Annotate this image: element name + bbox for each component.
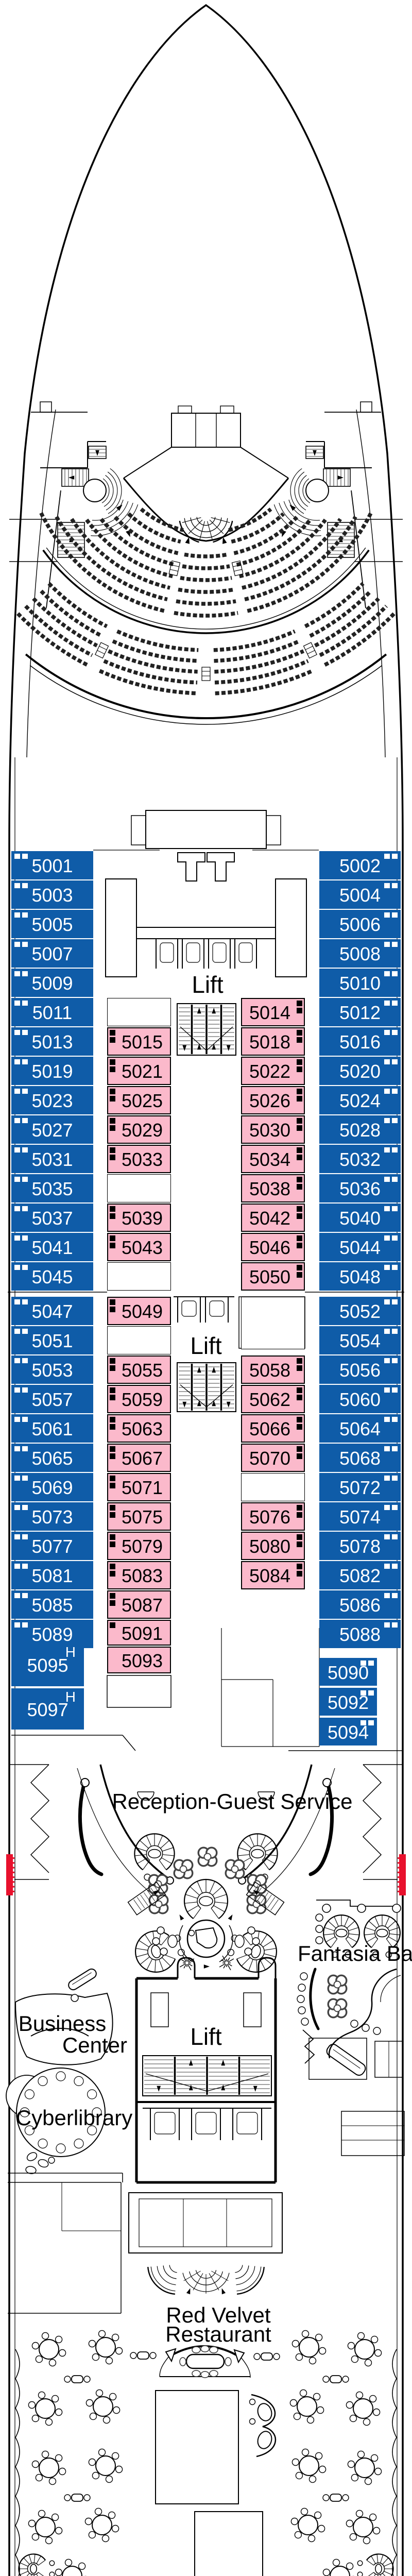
berth-square-icon (392, 1265, 398, 1270)
cabin-5088: 5088 (319, 1620, 401, 1648)
cabin-number: 5054 (339, 1330, 381, 1350)
galley (129, 2193, 282, 2253)
cabin-5032: 5032 (319, 1145, 401, 1173)
berth-square-icon (392, 1147, 398, 1153)
berth-square-icon (14, 1265, 20, 1270)
berth-square-icon (384, 1505, 390, 1510)
cabin-5087: 5087 (107, 1590, 171, 1619)
cabin-number: 5023 (31, 1090, 73, 1110)
cabin-5037: 5037 (11, 1204, 93, 1232)
berth-square-icon (384, 1299, 390, 1304)
berth-square-icon (297, 1213, 302, 1219)
berth-square-icon (14, 1505, 20, 1510)
cabin-number: 5067 (115, 1448, 163, 1468)
berth-square-icon (14, 1387, 20, 1393)
berth-square-icon (22, 1476, 28, 1481)
cabin-5050: 5050 (241, 1262, 305, 1291)
berth-square-icon (392, 1030, 398, 1035)
cabin-5006: 5006 (319, 910, 401, 938)
cabin-5093: 5093 (107, 1647, 171, 1673)
berth-square-icon (297, 1089, 302, 1094)
cabin-number: 5066 (249, 1418, 297, 1438)
cabin-number: 5030 (249, 1120, 297, 1140)
berth-square-icon (392, 1564, 398, 1569)
cabin-5086: 5086 (319, 1590, 401, 1619)
berth-square-icon (110, 1512, 115, 1518)
berth-square-icon (110, 1395, 115, 1400)
berth-square-icon (110, 1059, 115, 1065)
cabin-5063: 5063 (107, 1414, 171, 1443)
cabin-number: 5016 (339, 1031, 381, 1052)
cabin-number: 5056 (339, 1360, 381, 1380)
berth-square-icon (297, 1571, 302, 1577)
cabin-number: 5072 (339, 1477, 381, 1497)
cabin-number: 5021 (115, 1061, 163, 1081)
berth-square-icon (110, 1307, 115, 1312)
berth-square-icon (22, 1534, 28, 1539)
berth-square-icon (110, 1365, 115, 1371)
cabin-number: 5062 (249, 1389, 297, 1409)
label-business-center-1: Business (19, 2011, 106, 2036)
cabin-5065: 5065 (11, 1444, 93, 1472)
berth-square-icon (392, 1358, 398, 1363)
berth-square-icon (14, 1059, 20, 1064)
berth-square-icon (384, 1001, 390, 1006)
berth-square-icon (22, 1059, 28, 1064)
cabin-number: 5009 (31, 973, 73, 993)
cabin-number: 5086 (339, 1595, 381, 1615)
room-blank (107, 1174, 171, 1202)
berth-square-icon (22, 1564, 28, 1569)
berth-square-icon (110, 1593, 115, 1599)
berth-square-icon (14, 1118, 20, 1123)
berth-square-icon (22, 1299, 28, 1304)
cabin-5039: 5039 (107, 1204, 171, 1232)
cabin-5031: 5031 (11, 1145, 93, 1173)
room-blank (107, 1326, 171, 1354)
cabin-number: 5003 (31, 885, 73, 905)
berth-square-icon (297, 1096, 302, 1101)
berth-square-icon (297, 1206, 302, 1212)
berth-square-icon (110, 1564, 115, 1569)
cabin-5022: 5022 (241, 1057, 305, 1085)
berth-square-icon (110, 1089, 115, 1094)
berth-square-icon (384, 1417, 390, 1422)
cabin-number: 5045 (31, 1266, 73, 1286)
berth-square-icon (297, 1155, 302, 1160)
berth-square-icon (392, 1446, 398, 1451)
label-cyberlibrary: Cyberlibrary (16, 2106, 132, 2130)
berth-square-icon (392, 1476, 398, 1481)
berth-square-icon (110, 1118, 115, 1124)
cabin-number: 5033 (115, 1149, 163, 1169)
cabin-5067: 5067 (107, 1444, 171, 1472)
berth-square-icon (297, 1059, 302, 1065)
cabin-number: 5049 (115, 1301, 163, 1321)
cabin-number: 5051 (31, 1330, 73, 1350)
stage-block (131, 810, 281, 881)
berth-square-icon (14, 1206, 20, 1211)
cabin-5095: 5095H (11, 1643, 84, 1686)
cabin-5097: 5097H (11, 1688, 84, 1730)
berth-square-icon (392, 1387, 398, 1393)
berth-square-icon (384, 1387, 390, 1393)
cabin-5018: 5018 (241, 1027, 305, 1056)
cabin-5007: 5007 (11, 939, 93, 968)
cabin-number: 5079 (115, 1536, 163, 1556)
room-blank (107, 1262, 171, 1291)
cabin-number: 5020 (339, 1061, 381, 1081)
berth-square-icon (14, 1358, 20, 1363)
cabin-number: 5027 (31, 1120, 73, 1140)
berth-square-icon (14, 1030, 20, 1035)
berth-square-icon (392, 1417, 398, 1422)
cabin-number: 5075 (115, 1506, 163, 1527)
label-lift-atrium: Lift (190, 2023, 221, 2050)
cabin-5046: 5046 (241, 1233, 305, 1261)
room-blank (241, 1297, 305, 1349)
cabin-number: 5095 (27, 1655, 68, 1675)
cabin-number: 5061 (31, 1418, 73, 1438)
cabin-5025: 5025 (107, 1086, 171, 1114)
cabin-number: 5022 (249, 1061, 297, 1081)
berth-square-icon (297, 1358, 302, 1364)
berth-square-icon (110, 1096, 115, 1101)
berth-square-icon (392, 1534, 398, 1539)
cabin-5080: 5080 (241, 1532, 305, 1560)
berth-square-icon (22, 912, 28, 918)
berth-square-icon (297, 1387, 302, 1393)
cabin-number: 5001 (31, 855, 73, 875)
cabin-number: 5040 (339, 1208, 381, 1228)
cabin-5024: 5024 (319, 1086, 401, 1114)
berth-square-icon (14, 971, 20, 976)
berth-square-icon (392, 854, 398, 859)
cabin-number: 5002 (339, 855, 381, 875)
berth-square-icon (392, 1299, 398, 1304)
berth-square-icon (22, 1505, 28, 1510)
berth-square-icon (384, 1235, 390, 1241)
berth-square-icon (297, 1030, 302, 1036)
berth-square-icon (22, 1358, 28, 1363)
berth-square-icon (22, 1265, 28, 1270)
cabin-number: 5048 (339, 1266, 381, 1286)
cabin-number: 5064 (339, 1418, 381, 1438)
cabin-number: 5046 (249, 1237, 297, 1257)
cabin-number: 5047 (31, 1301, 73, 1321)
cabin-5019: 5019 (11, 1057, 93, 1085)
cabin-number: 5018 (249, 1031, 297, 1052)
cabin-number: 5080 (249, 1536, 297, 1556)
cabin-5021: 5021 (107, 1057, 171, 1085)
berth-square-icon (110, 1446, 115, 1452)
berth-square-icon (384, 1059, 390, 1064)
deck-plan: 5001500350055007500950115013501950235027… (0, 0, 412, 2576)
berth-square-icon (14, 1001, 20, 1006)
berth-square-icon (384, 1358, 390, 1363)
cabin-number: 5024 (339, 1090, 381, 1110)
cabin-5038: 5038 (241, 1174, 305, 1202)
cabin-5074: 5074 (319, 1502, 401, 1531)
berth-square-icon (384, 1265, 390, 1270)
berth-square-icon (14, 1417, 20, 1422)
berth-square-icon (14, 1622, 20, 1628)
berth-square-icon (297, 1453, 302, 1459)
cabin-5079: 5079 (107, 1532, 171, 1560)
berth-square-icon (368, 1660, 374, 1666)
cabin-number: 5082 (339, 1565, 381, 1585)
berth-square-icon (22, 971, 28, 976)
berth-square-icon (392, 1593, 398, 1598)
cabin-number: 5070 (249, 1448, 297, 1468)
berth-square-icon (297, 1272, 302, 1278)
cabin-5081: 5081 (11, 1561, 93, 1589)
berth-square-icon (22, 1235, 28, 1241)
cabin-5049: 5049 (107, 1297, 171, 1325)
cabin-number: 5029 (115, 1120, 163, 1140)
cabin-number: 5013 (31, 1031, 73, 1052)
cabin-5041: 5041 (11, 1233, 93, 1261)
berth-square-icon (392, 1206, 398, 1211)
berth-square-icon (297, 1417, 302, 1422)
berth-square-icon (392, 912, 398, 918)
berth-square-icon (22, 1206, 28, 1211)
cabin-5051: 5051 (11, 1326, 93, 1354)
cabin-number: 5078 (339, 1536, 381, 1556)
cabin-5023: 5023 (11, 1086, 93, 1114)
berth-square-icon (14, 1564, 20, 1569)
cabin-number: 5039 (115, 1208, 163, 1228)
cabin-5033: 5033 (107, 1145, 171, 1173)
cabin-5072: 5072 (319, 1473, 401, 1501)
berth-square-icon (297, 1564, 302, 1569)
berth-square-icon (384, 971, 390, 976)
cabin-5010: 5010 (319, 969, 401, 997)
cabin-5042: 5042 (241, 1204, 305, 1232)
cabin-number: 5077 (31, 1536, 73, 1556)
cabin-number: 5053 (31, 1360, 73, 1380)
cabin-number: 5026 (249, 1090, 297, 1110)
berth-square-icon (110, 1147, 115, 1153)
cabin-number: 5081 (31, 1565, 73, 1585)
cabin-number: 5089 (31, 1624, 73, 1644)
label-fantasia-bar: Fantasia Bar (298, 1941, 412, 1966)
cabin-number: 5031 (31, 1149, 73, 1169)
berth-square-icon (22, 1118, 28, 1123)
berth-square-icon (360, 1660, 366, 1666)
label-lift-forward: Lift (192, 971, 223, 998)
cabin-number: 5074 (339, 1506, 381, 1527)
cabin-number: 5038 (249, 1178, 297, 1198)
berth-square-icon (110, 1453, 115, 1459)
cabin-number: 5084 (249, 1565, 297, 1585)
cabin-5016: 5016 (319, 1027, 401, 1056)
cabin-5092: 5092 (319, 1688, 377, 1716)
berth-square-icon (110, 1358, 115, 1364)
berth-square-icon (110, 1155, 115, 1160)
cabin-number: 5028 (339, 1120, 381, 1140)
cabin-5058: 5058 (241, 1355, 305, 1384)
cabin-number: 5015 (115, 1031, 163, 1052)
berth-square-icon (22, 1622, 28, 1628)
cabin-5069: 5069 (11, 1473, 93, 1501)
berth-square-icon (297, 1265, 302, 1270)
cabin-5045: 5045 (11, 1262, 93, 1291)
cabin-5009: 5009 (11, 969, 93, 997)
cabin-5005: 5005 (11, 910, 93, 938)
cabin-number: 5055 (115, 1360, 163, 1380)
cabin-5028: 5028 (319, 1115, 401, 1144)
berth-square-icon (110, 1243, 115, 1248)
berth-square-icon (384, 854, 390, 859)
cabin-5034: 5034 (241, 1145, 305, 1173)
berth-square-icon (297, 1365, 302, 1371)
berth-square-icon (14, 1235, 20, 1241)
cabin-5083: 5083 (107, 1561, 171, 1589)
berth-square-icon (384, 912, 390, 918)
cabin-number: 5087 (115, 1595, 163, 1615)
berth-square-icon (110, 1541, 115, 1547)
cabin-5015: 5015 (107, 1027, 171, 1056)
cabin-5078: 5078 (319, 1532, 401, 1560)
cabin-number: 5057 (31, 1389, 73, 1409)
gangway-starboard (398, 1854, 406, 1895)
cabin-5043: 5043 (107, 1233, 171, 1261)
berth-square-icon (297, 1424, 302, 1430)
berth-square-icon (297, 1037, 302, 1043)
cabin-number: 5073 (31, 1506, 73, 1527)
accessible-cabin-badge: H (65, 1645, 76, 1659)
berth-square-icon (368, 1690, 374, 1696)
berth-square-icon (110, 1235, 115, 1241)
berth-square-icon (14, 1534, 20, 1539)
cabin-5013: 5013 (11, 1027, 93, 1056)
cabin-5068: 5068 (319, 1444, 401, 1472)
berth-square-icon (392, 1001, 398, 1006)
berth-square-icon (297, 1177, 302, 1182)
berth-square-icon (384, 883, 390, 888)
cabin-number: 5008 (339, 943, 381, 963)
berth-square-icon (110, 1417, 115, 1422)
berth-square-icon (14, 1593, 20, 1598)
berth-square-icon (297, 1147, 302, 1153)
cabin-5029: 5029 (107, 1115, 171, 1144)
berth-square-icon (384, 1089, 390, 1094)
cabin-number: 5042 (249, 1208, 297, 1228)
cabin-5077: 5077 (11, 1532, 93, 1560)
cabin-number: 5071 (115, 1477, 163, 1497)
berth-square-icon (110, 1571, 115, 1577)
berth-square-icon (384, 1118, 390, 1123)
cabin-5004: 5004 (319, 880, 401, 909)
cabin-number: 5004 (339, 885, 381, 905)
cabin-5001: 5001 (11, 851, 93, 879)
berth-square-icon (14, 912, 20, 918)
berth-square-icon (392, 1059, 398, 1064)
cabin-5082: 5082 (319, 1561, 401, 1589)
cabin-5057: 5057 (11, 1385, 93, 1413)
berth-square-icon (392, 1329, 398, 1334)
berth-square-icon (297, 1243, 302, 1248)
cabin-number: 5007 (31, 943, 73, 963)
berth-square-icon (384, 1147, 390, 1153)
berth-square-icon (384, 1593, 390, 1598)
cabin-number: 5076 (249, 1506, 297, 1527)
berth-square-icon (297, 1066, 302, 1072)
cabin-5054: 5054 (319, 1326, 401, 1354)
label-lift-mid: Lift (190, 1332, 221, 1360)
cabin-number: 5041 (31, 1237, 73, 1257)
cabin-5011: 5011 (11, 998, 93, 1026)
berth-square-icon (14, 854, 20, 859)
cabin-5070: 5070 (241, 1444, 305, 1472)
cabin-5060: 5060 (319, 1385, 401, 1413)
berth-square-icon (297, 1118, 302, 1124)
cabin-5020: 5020 (319, 1057, 401, 1085)
berth-square-icon (392, 1235, 398, 1241)
cabin-5026: 5026 (241, 1086, 305, 1114)
berth-square-icon (110, 1622, 115, 1628)
berth-square-icon (22, 1446, 28, 1451)
berth-square-icon (110, 1476, 115, 1481)
berth-square-icon (297, 1001, 302, 1006)
atrium (128, 1834, 284, 1972)
cabin-5059: 5059 (107, 1385, 171, 1413)
theater (18, 406, 394, 724)
cabin-number: 5069 (31, 1477, 73, 1497)
cabin-number: 5032 (339, 1149, 381, 1169)
cabin-number: 5036 (339, 1178, 381, 1198)
cabin-5073: 5073 (11, 1502, 93, 1531)
accessible-cabin-badge: H (65, 1690, 76, 1704)
label-business-center-2: Center (62, 2033, 127, 2058)
cabin-number: 5037 (31, 1208, 73, 1228)
berth-square-icon (360, 1690, 366, 1696)
cabin-number: 5097 (27, 1699, 68, 1719)
cabin-number: 5085 (31, 1595, 73, 1615)
berth-square-icon (22, 1387, 28, 1393)
cabin-number: 5063 (115, 1418, 163, 1438)
berth-square-icon (14, 1476, 20, 1481)
berth-square-icon (297, 1541, 302, 1547)
cabin-5003: 5003 (11, 880, 93, 909)
berth-square-icon (392, 971, 398, 976)
berth-square-icon (110, 1600, 115, 1606)
cabin-5055: 5055 (107, 1355, 171, 1384)
berth-square-icon (368, 1720, 374, 1725)
berth-square-icon (392, 942, 398, 947)
berth-square-icon (297, 1446, 302, 1452)
berth-square-icon (110, 1534, 115, 1540)
berth-square-icon (392, 1505, 398, 1510)
cabin-5090: 5090 (319, 1658, 377, 1686)
berth-square-icon (22, 1417, 28, 1422)
cabin-5091: 5091 (107, 1620, 171, 1646)
berth-square-icon (110, 1125, 115, 1131)
cabin-number: 5012 (339, 1002, 381, 1022)
cabin-5027: 5027 (11, 1115, 93, 1144)
cabin-number: 5058 (249, 1360, 297, 1380)
cabin-5062: 5062 (241, 1385, 305, 1413)
berth-square-icon (22, 1147, 28, 1153)
berth-square-icon (297, 1395, 302, 1400)
berth-square-icon (360, 1720, 366, 1725)
cabin-5052: 5052 (319, 1297, 401, 1325)
berth-square-icon (22, 1593, 28, 1598)
berth-square-icon (110, 1206, 115, 1212)
berth-square-icon (110, 1505, 115, 1511)
cabin-5048: 5048 (319, 1262, 401, 1291)
